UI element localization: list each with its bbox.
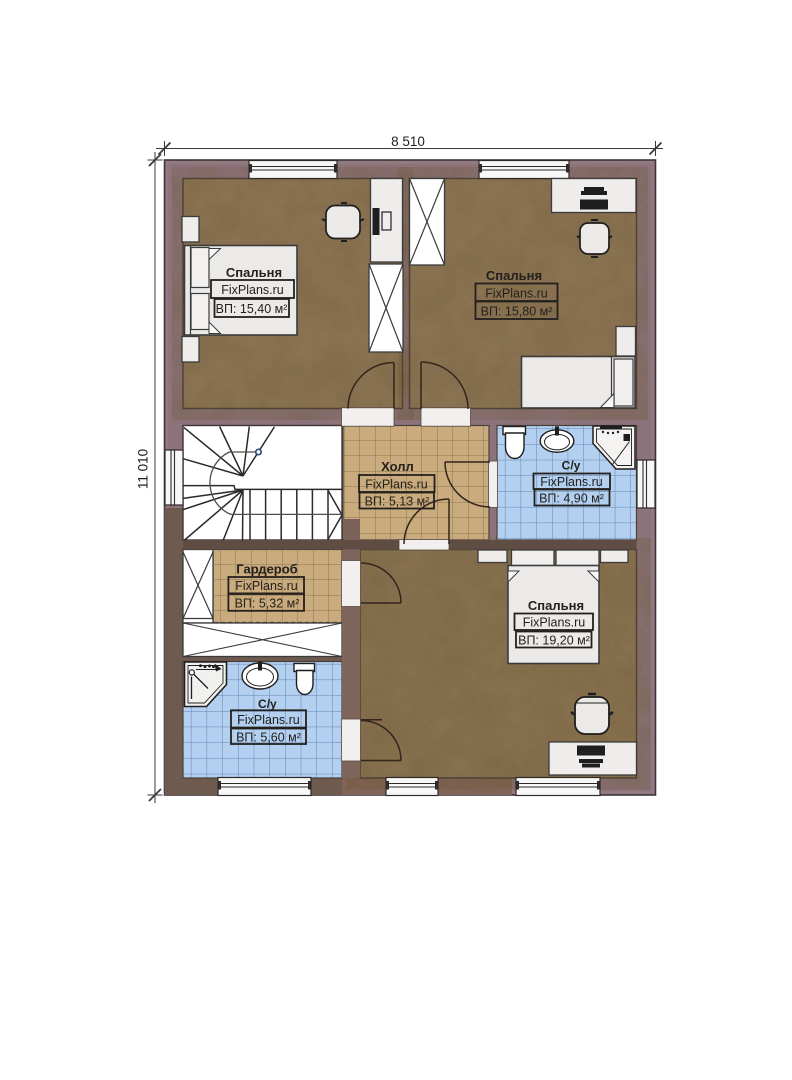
- svg-text:11 010: 11 010: [136, 449, 151, 489]
- svg-text:8 510: 8 510: [391, 134, 425, 149]
- svg-text:FixPlans.ru: FixPlans.ru: [221, 283, 284, 297]
- svg-text:ВП: 4,90 м²: ВП: 4,90 м²: [539, 492, 604, 506]
- svg-text:ВП: 5,32 м²: ВП: 5,32 м²: [235, 597, 300, 611]
- svg-text:FixPlans.ru: FixPlans.ru: [365, 478, 428, 492]
- svg-text:FixPlans.ru: FixPlans.ru: [237, 713, 300, 727]
- svg-text:С/у: С/у: [562, 459, 581, 473]
- svg-text:Спальня: Спальня: [226, 265, 282, 280]
- svg-text:ВП: 15,80 м²: ВП: 15,80 м²: [481, 305, 553, 319]
- svg-text:ВП: 15,40 м²: ВП: 15,40 м²: [216, 302, 288, 316]
- svg-text:FixPlans.ru: FixPlans.ru: [235, 579, 298, 593]
- svg-text:Гардероб: Гардероб: [236, 562, 297, 577]
- svg-text:Холл: Холл: [381, 459, 414, 474]
- svg-text:ВП: 5,13 м²: ВП: 5,13 м²: [365, 495, 430, 509]
- svg-text:Спальня: Спальня: [486, 268, 542, 283]
- svg-text:ВП: 19,20 м²: ВП: 19,20 м²: [518, 634, 590, 648]
- svg-text:Спальня: Спальня: [528, 598, 584, 613]
- svg-text:FixPlans.ru: FixPlans.ru: [485, 287, 548, 301]
- svg-text:С/у: С/у: [258, 697, 277, 711]
- svg-text:FixPlans.ru: FixPlans.ru: [540, 475, 603, 489]
- svg-text:ВП: 5,60 м²: ВП: 5,60 м²: [236, 731, 301, 745]
- svg-text:FixPlans.ru: FixPlans.ru: [523, 616, 586, 630]
